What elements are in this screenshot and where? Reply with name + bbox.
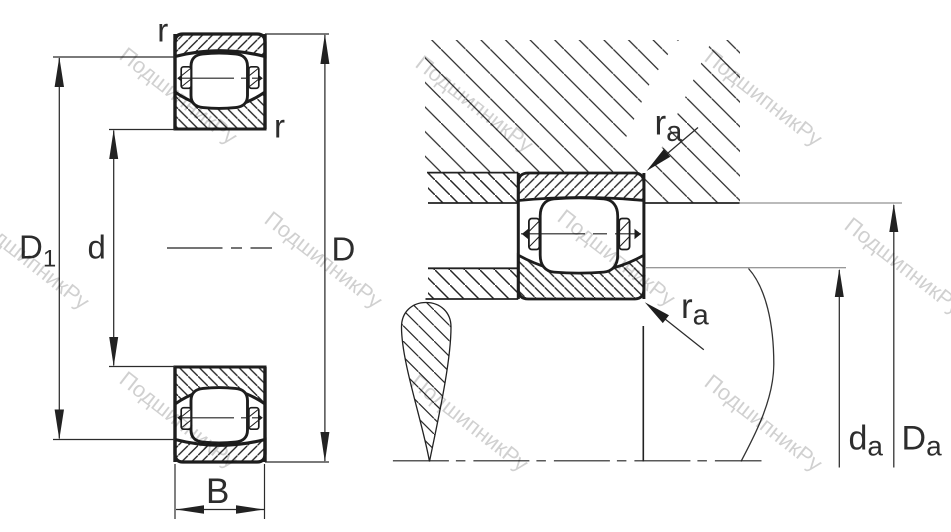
svg-text:r: r [274,108,285,145]
svg-text:d: d [88,229,106,266]
svg-text:B: B [206,472,229,511]
svg-text:r: r [157,12,168,49]
